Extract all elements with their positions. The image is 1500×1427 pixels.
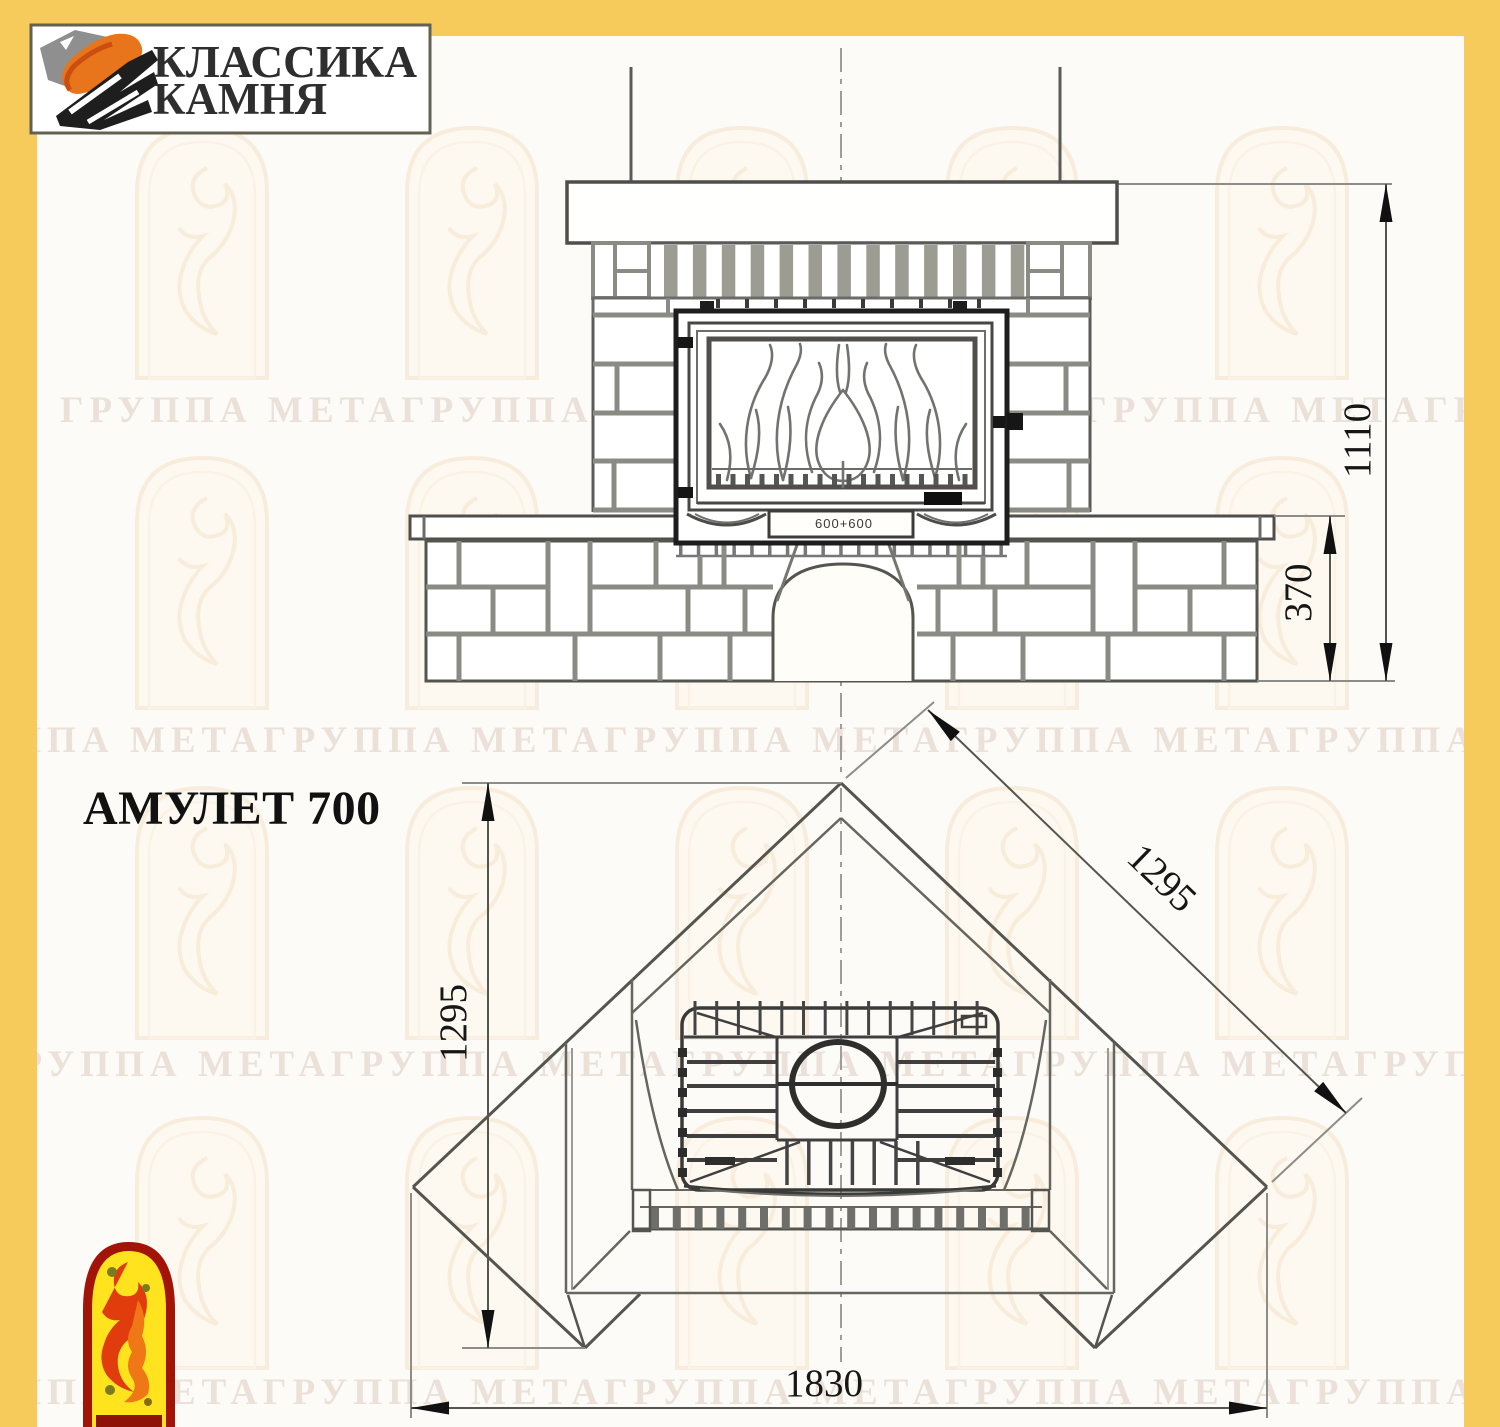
svg-text:КАМНЯ: КАМНЯ (153, 74, 327, 124)
svg-text:600+600: 600+600 (815, 516, 873, 531)
svg-text:1830: 1830 (785, 1362, 863, 1405)
svg-text:1110: 1110 (1336, 403, 1379, 478)
svg-text:ГРУППА МЕТАГРУППА МЕТАГРУППА М: ГРУППА МЕТАГРУППА МЕТАГРУППА МЕТАГРУППА … (0, 1372, 1500, 1413)
svg-text:370: 370 (1277, 564, 1320, 623)
svg-text:АМУЛЕТ 700: АМУЛЕТ 700 (83, 782, 381, 835)
svg-text:1295: 1295 (432, 984, 475, 1062)
svg-text:ГРУППА МЕТАГРУППА МЕТАГРУППА М: ГРУППА МЕТАГРУППА МЕТАГРУППА МЕТАГРУППА … (0, 720, 1500, 761)
svg-text:ГРУППА МЕТАГРУППА МЕТАГРУППА М: ГРУППА МЕТАГРУППА МЕТАГРУППА МЕТАГРУППА … (0, 1044, 1500, 1085)
